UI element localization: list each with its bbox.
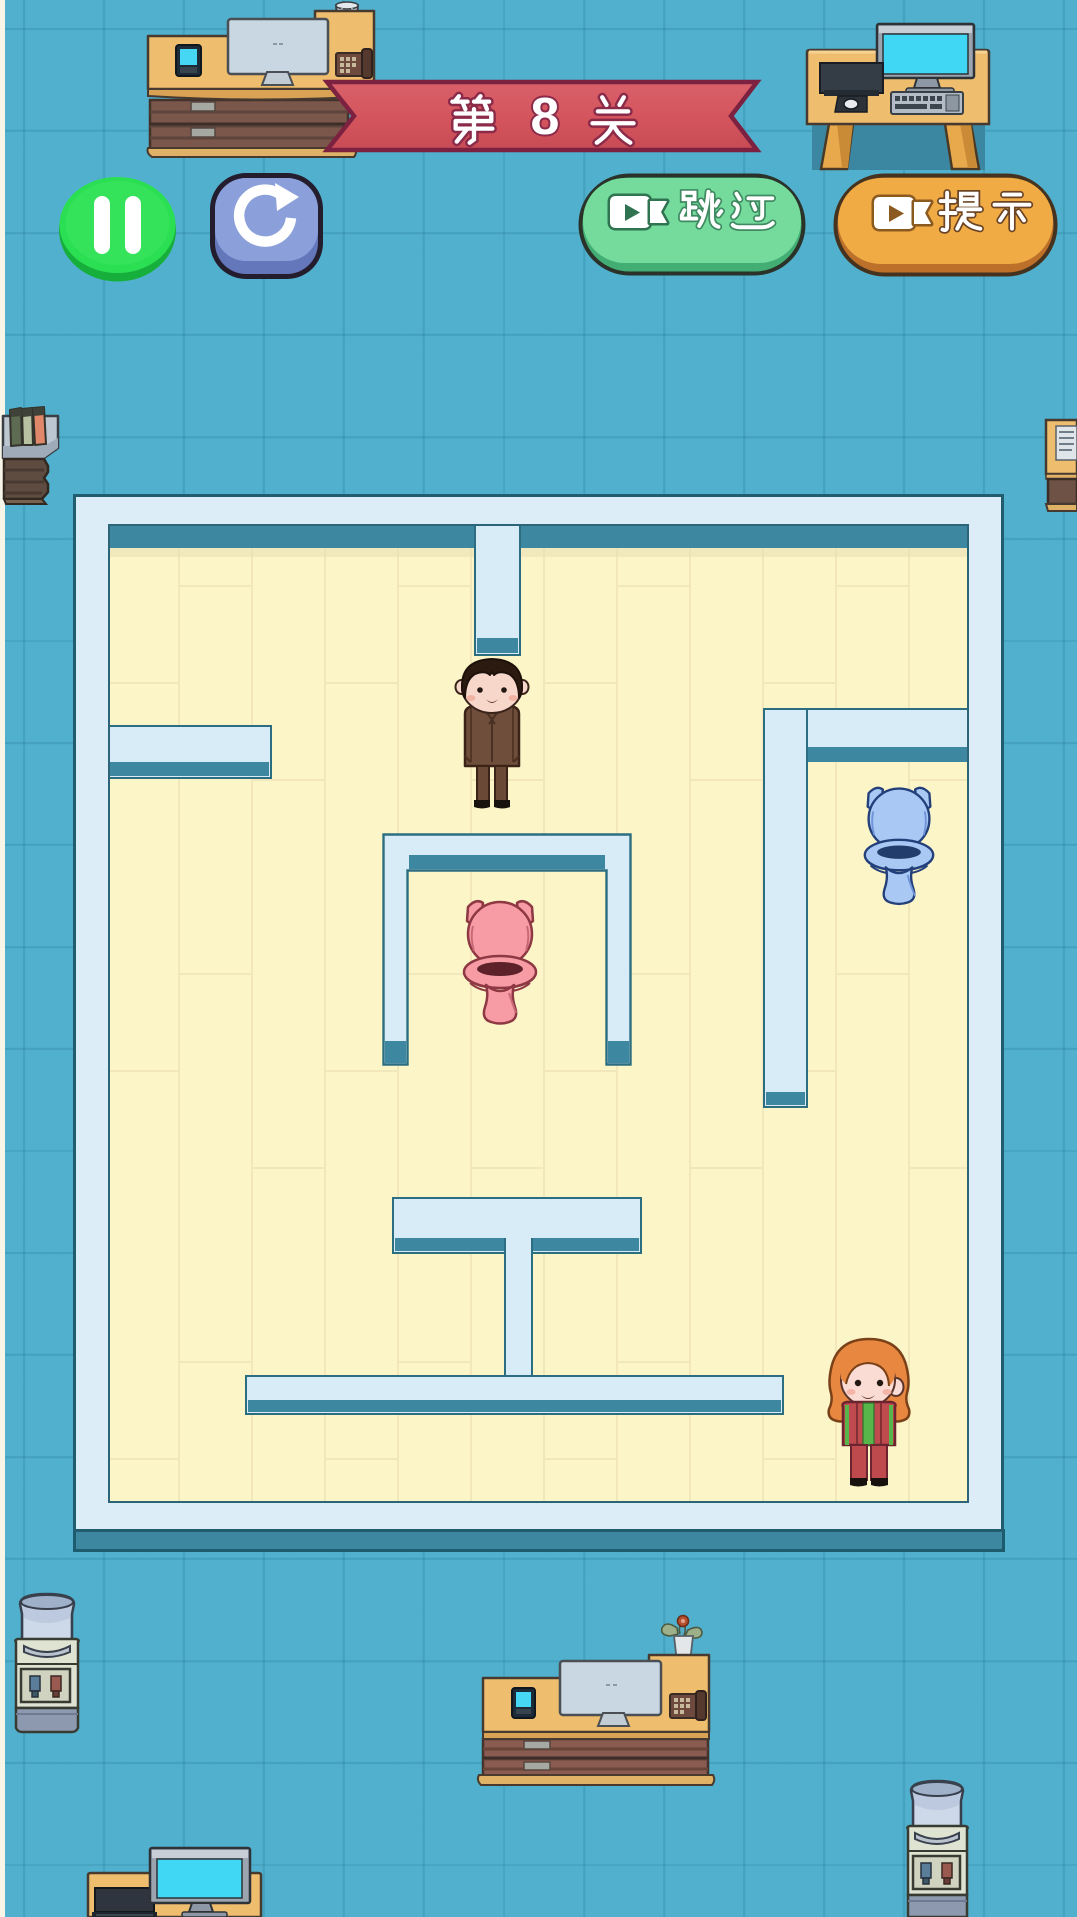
svg-text:8: 8 xyxy=(531,88,560,146)
